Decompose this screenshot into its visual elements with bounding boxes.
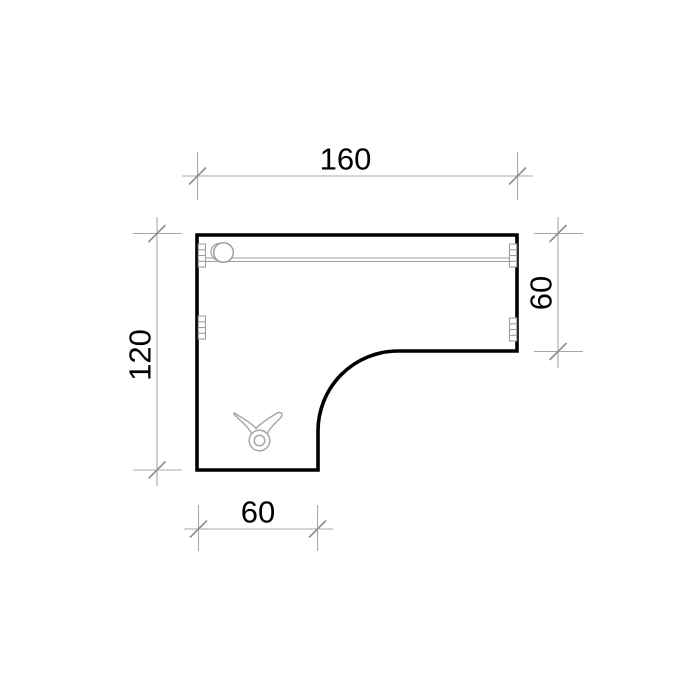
edge-fitting-icon [198,244,205,267]
edge-fitting-icon [510,318,517,341]
desk-plan-drawing [0,0,700,700]
drawing-canvas: 160 120 60 60 [0,0,700,700]
edge-fitting-icon [510,244,517,267]
dimension-label-right-depth: 60 [526,276,557,310]
cable-grommet-icon [211,243,233,263]
dimension-label-top-width: 160 [320,143,372,174]
desk-outline [197,235,517,470]
edge-fitting-icon [198,316,205,339]
dimension-label-left-height: 120 [124,329,155,381]
dimension-label-bottom-width: 60 [241,496,275,527]
